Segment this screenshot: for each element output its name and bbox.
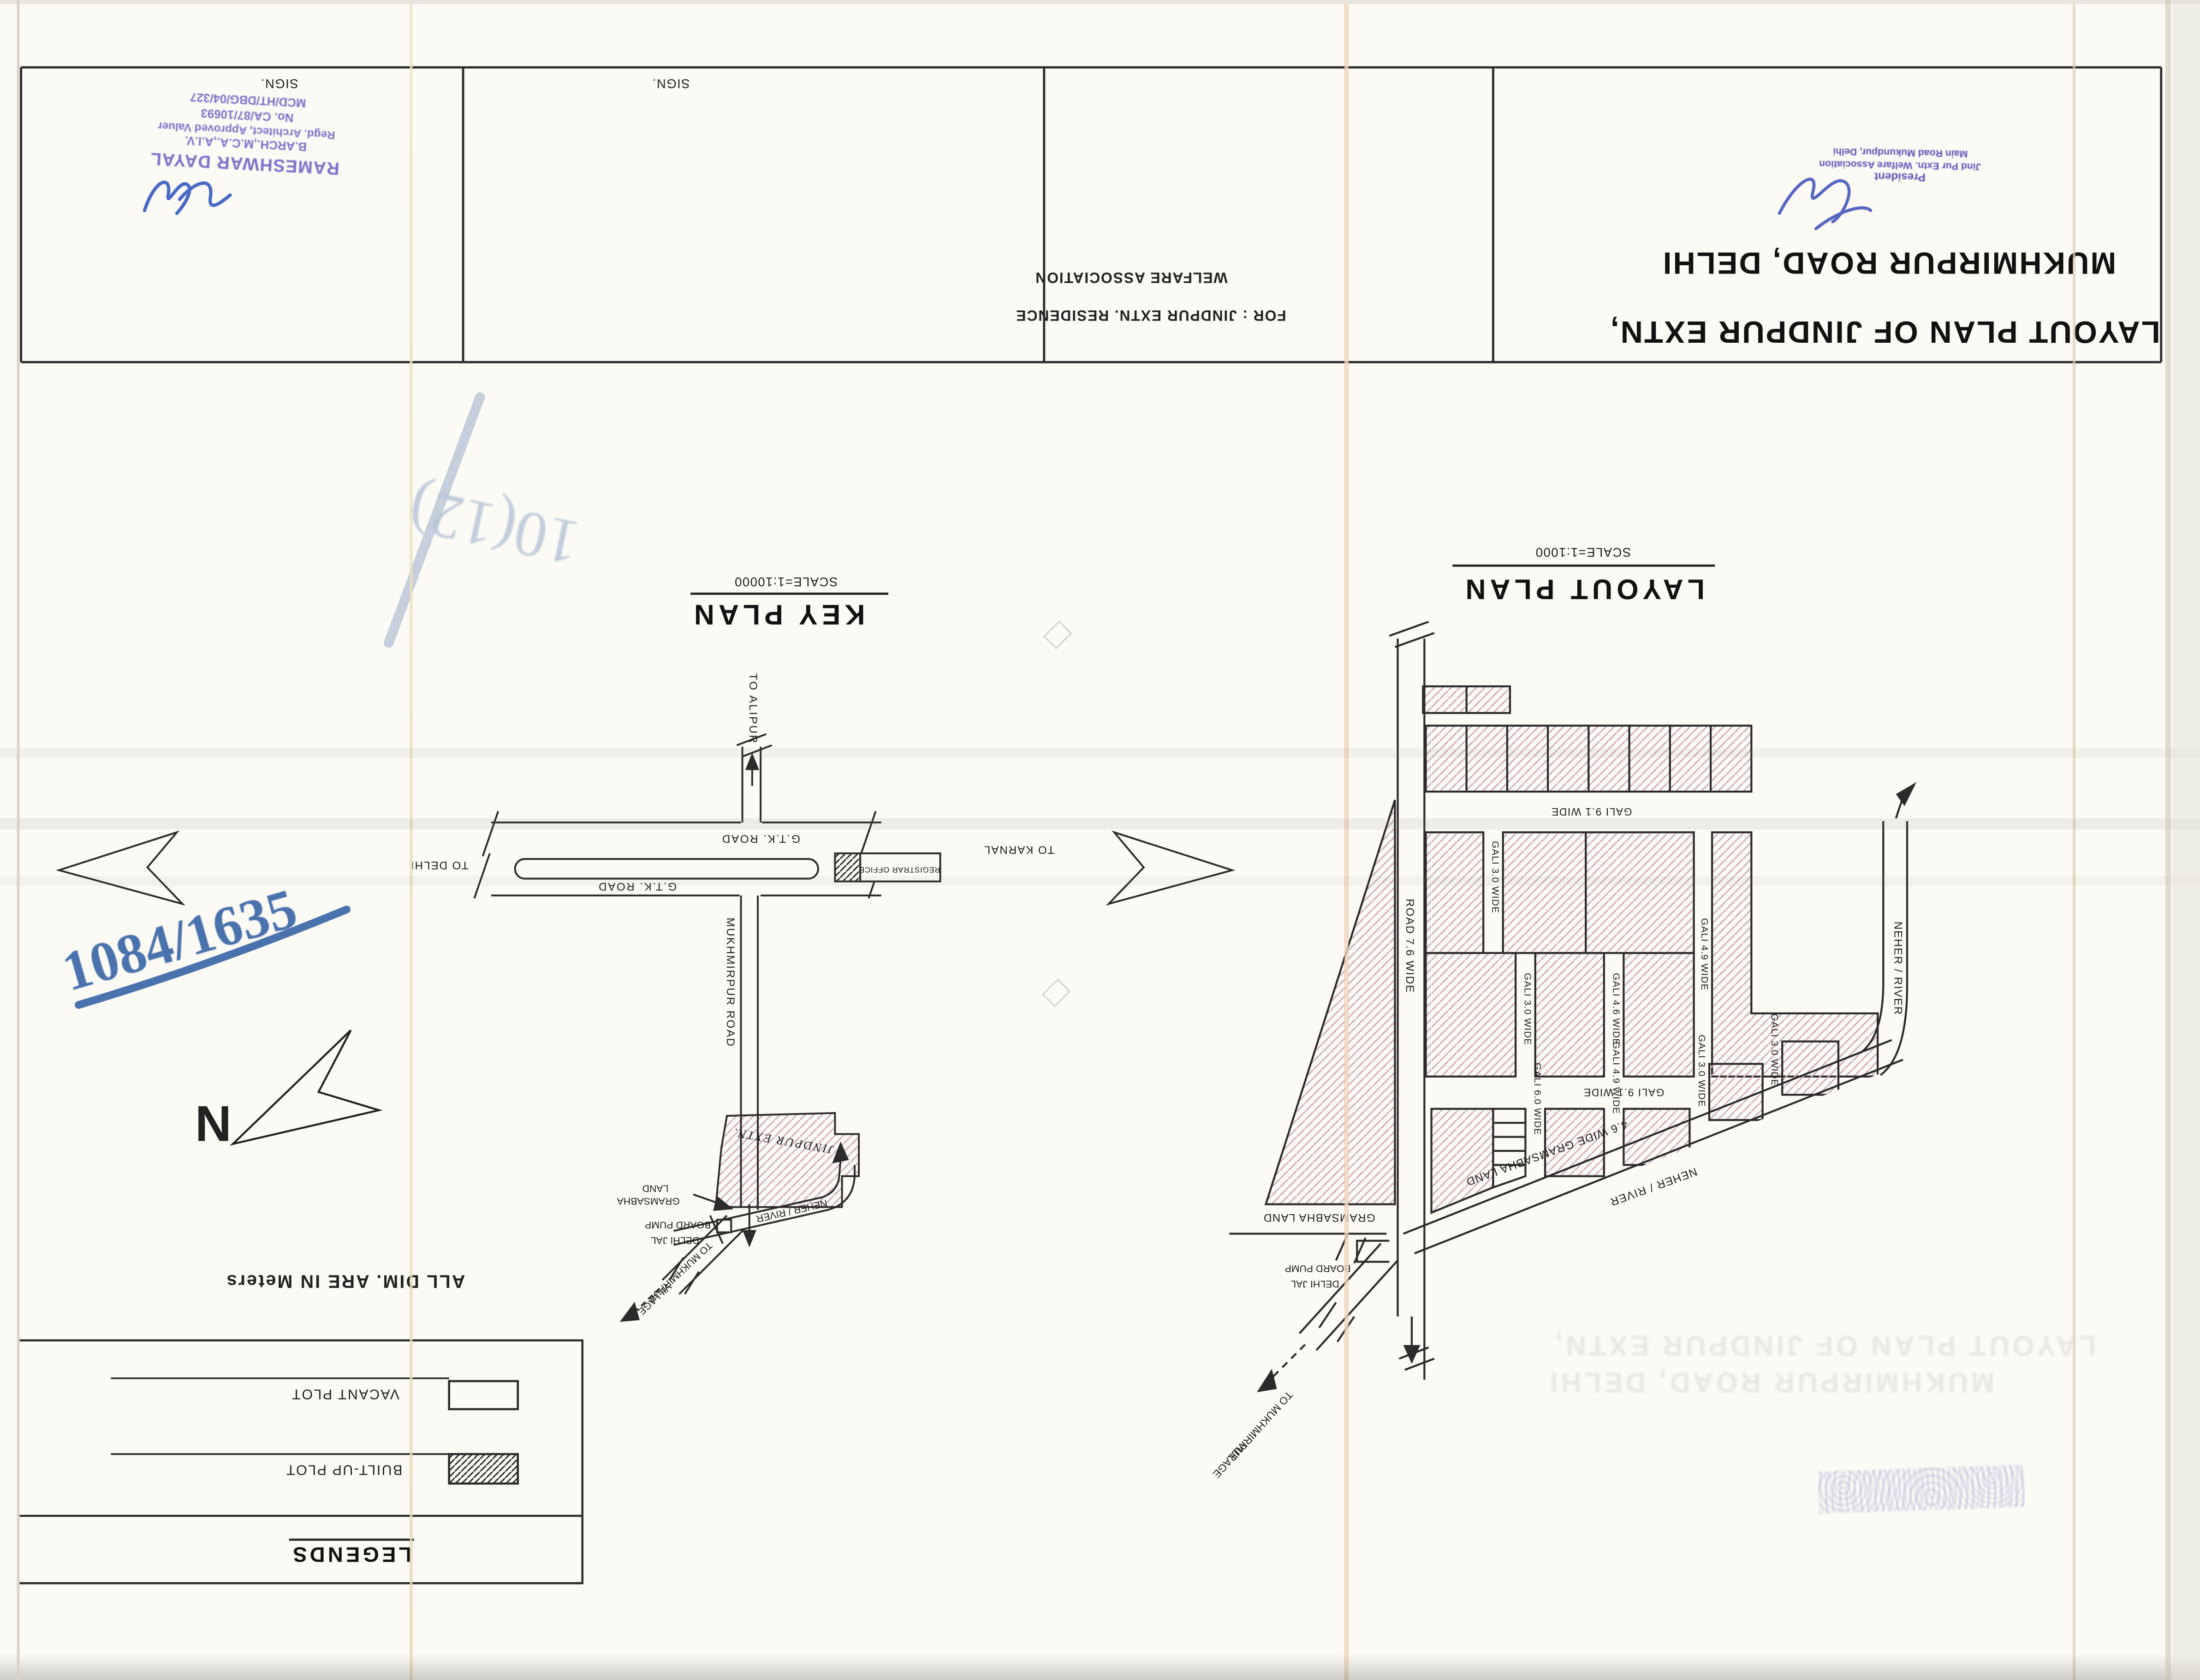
mukhmirpur-road-label: MUKHMIRPUR ROAD bbox=[724, 917, 735, 1047]
to-karnal-arrow bbox=[1109, 832, 1232, 904]
scan-band-2 bbox=[0, 818, 2200, 829]
illegible-stamp-smudge bbox=[1818, 1465, 2024, 1514]
president-signature bbox=[1779, 179, 1871, 228]
fold-mark-1 bbox=[1044, 621, 1071, 648]
to-karnal-label: TO KARNAL bbox=[983, 844, 1054, 855]
key-pump bbox=[717, 1220, 731, 1232]
sheet-top-edge bbox=[0, 0, 2200, 4]
main-title-line-2: MUKHMIRPUR ROAD, DELHI bbox=[1662, 247, 2117, 278]
legend-built-label: BUILT-UP PLOT bbox=[285, 1461, 403, 1475]
sheet-left-edge bbox=[17, 0, 19, 1680]
sheet-bottom-edge bbox=[0, 1653, 2200, 1680]
key-pump-line1: BOARD PUMP bbox=[645, 1219, 711, 1229]
neher-vert-label: NEHER / RIVER bbox=[1892, 922, 1903, 1016]
to-alipur-label: TO ALIPUR bbox=[747, 673, 758, 744]
legend-swatch-built bbox=[449, 1454, 518, 1483]
road-76-label: ROAD 7.6 WIDE bbox=[1403, 899, 1415, 993]
to-delhi-label: TO DELHI bbox=[410, 859, 468, 870]
sign-label-1: SIGN. bbox=[260, 77, 298, 89]
sheet-right-edge bbox=[2165, 0, 2171, 1680]
for-line-1: FOR : JINDPUR EXTN. RESIDENCE bbox=[1015, 307, 1286, 322]
key-plan-heading: KEY PLAN bbox=[690, 599, 865, 627]
fold-crease-middle bbox=[1344, 0, 1349, 1680]
gali-49-label-b: GALI 4.9 WIDE bbox=[1609, 1042, 1619, 1114]
fold-crease-right bbox=[2073, 0, 2075, 1680]
key-plan-scale: SCALE=1:10000 bbox=[734, 575, 838, 587]
north-arrow bbox=[233, 1030, 379, 1144]
main-title-line-1: LAYOUT PLAN OF JINDPUR EXTN, bbox=[1609, 316, 2160, 347]
architect-signature bbox=[144, 182, 230, 213]
fold-mark-2 bbox=[1043, 979, 1070, 1006]
key-pump-line2: DELHI JAL bbox=[651, 1234, 699, 1244]
gali-91-label-b: GALI 9.1 WIDE bbox=[1583, 1087, 1664, 1097]
gali-91-label-a: GALI 9.1 WIDE bbox=[1551, 806, 1632, 816]
gali-30-label-c: GALI 3.0 WIDE bbox=[1695, 1035, 1704, 1107]
legends-title: LEGENDS bbox=[290, 1543, 411, 1564]
registrar-office-label: REGISTRAR OFFICE bbox=[859, 864, 940, 871]
pump-label-line2: DELHI JAL bbox=[1290, 1278, 1339, 1287]
gali-49-label-a: GALI 4.9 WIDE bbox=[1697, 918, 1707, 990]
for-line-2: WELFARE ASSOCIATION bbox=[1035, 269, 1227, 284]
gali-60-label: GALI 6.0 WIDE bbox=[1530, 1063, 1540, 1135]
architect-stamp: RAMESHWAR DAYAL B.ARCH.,M.C.A.,A.I.V. Re… bbox=[107, 85, 385, 180]
ghost-title-line1: LAYOUT PLAN OF JINDPUR EXTN, bbox=[1552, 1330, 2096, 1358]
layout-plan-drawing bbox=[1229, 622, 2049, 1418]
president-stamp-title: President bbox=[1817, 168, 1983, 185]
gali-30-label-d: GALI 3.0 WIDE bbox=[1768, 1013, 1778, 1086]
plot-wedge bbox=[1266, 800, 1395, 1204]
legend-vacant-label: VACANT PLOT bbox=[291, 1385, 399, 1399]
sign-label-2: SIGN. bbox=[652, 77, 690, 89]
gramsabha-land-label: GRAMSABHA LAND bbox=[1263, 1211, 1375, 1222]
layout-plan-heading: LAYOUT PLAN bbox=[1461, 574, 1705, 602]
gtk-road-top-label: G.T.K. ROAD bbox=[721, 832, 800, 843]
key-gramsabha-line2: GRAMSABHA bbox=[617, 1195, 680, 1205]
sheet-right-margin bbox=[2172, 0, 2200, 1680]
scan-band-3 bbox=[0, 876, 2200, 886]
president-stamp: President Jind Pur Extn. Welfare Associa… bbox=[1817, 143, 1983, 185]
legend-swatch-vacant bbox=[449, 1381, 518, 1409]
pump-label-line1: BOARD PUMP bbox=[1284, 1263, 1350, 1272]
gali-46-label: GALI 4.6 WIDE bbox=[1609, 973, 1619, 1045]
scan-band-1 bbox=[0, 748, 2200, 758]
north-letter: N bbox=[195, 1099, 232, 1150]
scanned-plan-sheet: SIGN. SIGN. FOR : JINDPUR EXTN. RESIDENC… bbox=[0, 0, 2200, 1680]
ghost-title-line2: MUKHMIRPUR ROAD, DELHI bbox=[1547, 1367, 1994, 1395]
all-dim-note: ALL DIM. ARE IN Meters bbox=[226, 1272, 465, 1291]
gali-30-label-b: GALI 3.0 WIDE bbox=[1521, 973, 1530, 1045]
key-gramsabha-line1: LAND bbox=[642, 1182, 669, 1192]
plot-L-block bbox=[1712, 832, 1878, 1076]
to-delhi-arrow bbox=[59, 832, 183, 904]
alipur-road bbox=[737, 734, 772, 822]
layout-plan-scale: SCALE=1:1000 bbox=[1535, 545, 1631, 558]
fold-crease-left bbox=[410, 0, 412, 1680]
